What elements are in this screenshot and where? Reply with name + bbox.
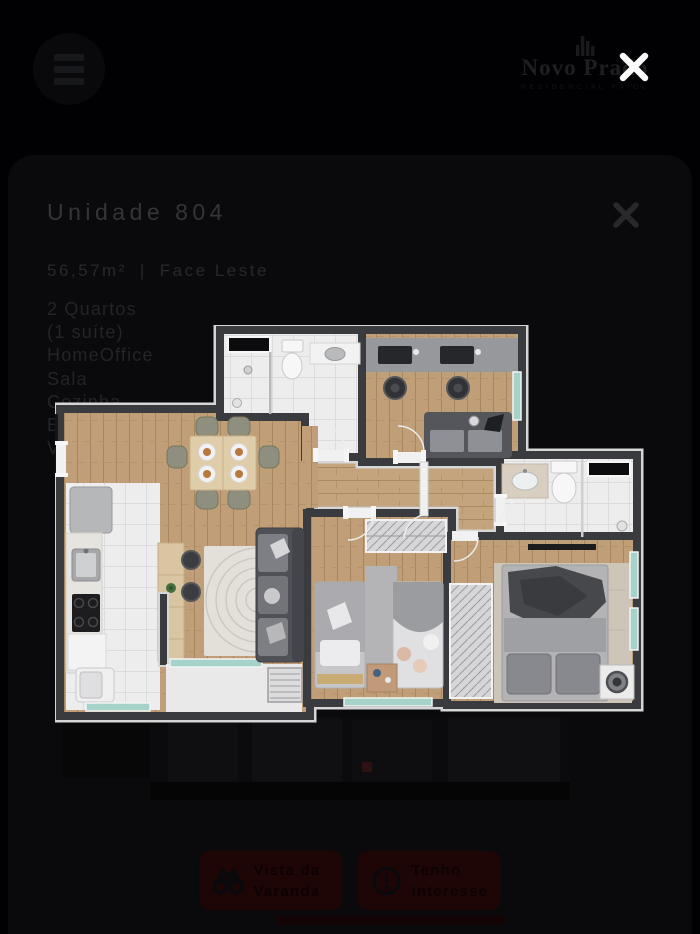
hamburger-icon (54, 54, 84, 61)
spec-separator: | (140, 261, 147, 281)
monitor (378, 346, 412, 364)
screen-close-button[interactable] (615, 48, 653, 86)
pillow (556, 654, 600, 694)
interest-label: Tenho interesse (412, 860, 489, 902)
toilet (552, 473, 576, 503)
binoculars-icon (213, 866, 245, 896)
close-icon (615, 48, 653, 86)
unit-title: Unidade 804 (47, 199, 227, 226)
sofa (256, 528, 304, 662)
pillow (507, 654, 551, 694)
close-icon (611, 200, 641, 230)
kitchen (66, 483, 160, 710)
unit-area: 56,57m² (47, 261, 127, 281)
stool (182, 583, 200, 601)
balcony-view-label: Vista da Varanda (254, 860, 321, 902)
passage-patch (302, 426, 318, 508)
unit-detail-modal: Unidade 804 56,57m² | Face Leste 2 Quart… (8, 155, 692, 934)
shower-divider (581, 459, 584, 537)
exclamation-icon (371, 866, 403, 896)
monitor (440, 346, 474, 364)
drying-rack (268, 668, 302, 702)
unit-orientation: Face Leste (160, 261, 269, 281)
drain (617, 521, 627, 531)
drain (233, 399, 242, 408)
toilet (282, 353, 302, 379)
shower-divider (269, 352, 272, 414)
tv-console (528, 544, 596, 550)
bottom-indicator-bar (275, 916, 505, 925)
sink (512, 472, 538, 490)
ghost-floor-below (62, 716, 570, 800)
balcony-view-button[interactable]: Vista da Varanda (200, 851, 343, 910)
window-bar (228, 337, 270, 352)
interest-button[interactable]: Tenho interesse (358, 851, 501, 910)
floor-plan-image (55, 325, 645, 805)
nightstand (367, 664, 397, 692)
shower-head (244, 366, 252, 374)
action-buttons: Vista da Varanda Tenho interesse (200, 851, 501, 910)
glass-door (170, 659, 262, 667)
sink (325, 348, 345, 361)
feature-item: 2 Quartos (47, 298, 154, 321)
window-bar (588, 462, 630, 476)
modal-close-button[interactable] (609, 199, 643, 233)
wardrobe (450, 584, 492, 698)
stool (182, 551, 200, 569)
menu-button[interactable] (33, 33, 105, 105)
unit-specs: 56,57m² | Face Leste (47, 261, 269, 281)
